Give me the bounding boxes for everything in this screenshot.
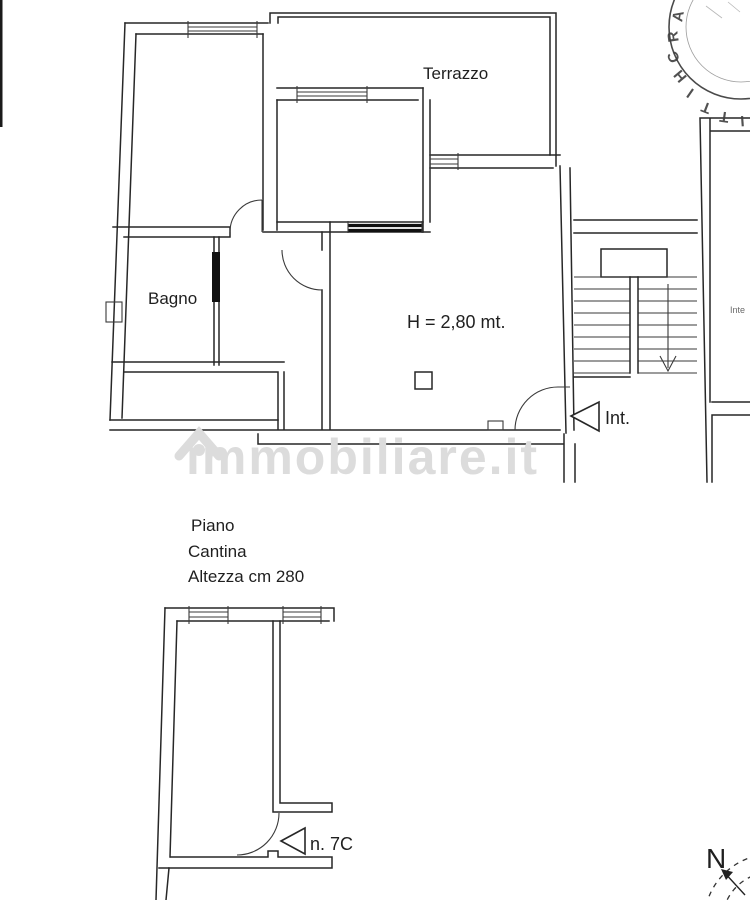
floor-plan-page: Terrazzo Bagno H = 2,80 mt. Int. Inte im… (0, 0, 750, 900)
compass-north-label: N (706, 843, 726, 874)
compass: N (704, 843, 750, 900)
architect-stamp: ARCHITTI (664, 0, 750, 129)
entrance-label: Int. (605, 408, 630, 428)
caption-room: Cantina (188, 542, 247, 561)
entrance-arrow-icon (571, 402, 599, 431)
glazed-door-kitchen (348, 221, 422, 233)
unit-label: n. 7C (310, 834, 353, 854)
stamp-arc-letters: ARCHITTI (664, 9, 745, 129)
caption-floor: Piano (191, 516, 234, 535)
ceiling-height-label: H = 2,80 mt. (407, 312, 506, 332)
stairs-down-arrow-icon (660, 284, 676, 371)
page-edge-mark (0, 0, 3, 127)
watermark: immobiliare.it (179, 429, 539, 485)
lower-floor-plan: n. 7C (156, 606, 353, 900)
stairs (574, 220, 697, 377)
upper-floor-plan: Terrazzo Bagno H = 2,80 mt. Int. Inte (106, 13, 750, 482)
edge-note: Inte (730, 305, 745, 315)
stamp-letter: I (740, 112, 745, 129)
column (415, 372, 432, 389)
stamp-letter: H (671, 66, 691, 85)
stamp-letter: T (699, 98, 714, 117)
stamp-scribble (706, 2, 740, 18)
terrazzo-parapet (270, 13, 556, 166)
terrazzo-label: Terrazzo (423, 64, 488, 83)
door-leaf-bagno (212, 252, 220, 302)
bagno-label: Bagno (148, 289, 197, 308)
floor-plan-drawing: Terrazzo Bagno H = 2,80 mt. Int. Inte im… (0, 0, 750, 900)
stamp-letter: T (719, 107, 730, 125)
unit-arrow-icon (281, 828, 305, 854)
door-arc-bedroom (230, 200, 262, 232)
stamp-letter: I (684, 85, 697, 101)
watermark-text: immobiliare.it (186, 429, 539, 485)
stamp-letter: A (669, 9, 688, 23)
door-arc-entrance (515, 387, 570, 430)
door-arc-living (282, 250, 322, 290)
door-arc-cantina (237, 813, 279, 855)
caption-height: Altezza cm 280 (188, 567, 304, 586)
stamp-letter: R (664, 30, 682, 43)
plan-caption: Piano Cantina Altezza cm 280 (188, 516, 304, 586)
